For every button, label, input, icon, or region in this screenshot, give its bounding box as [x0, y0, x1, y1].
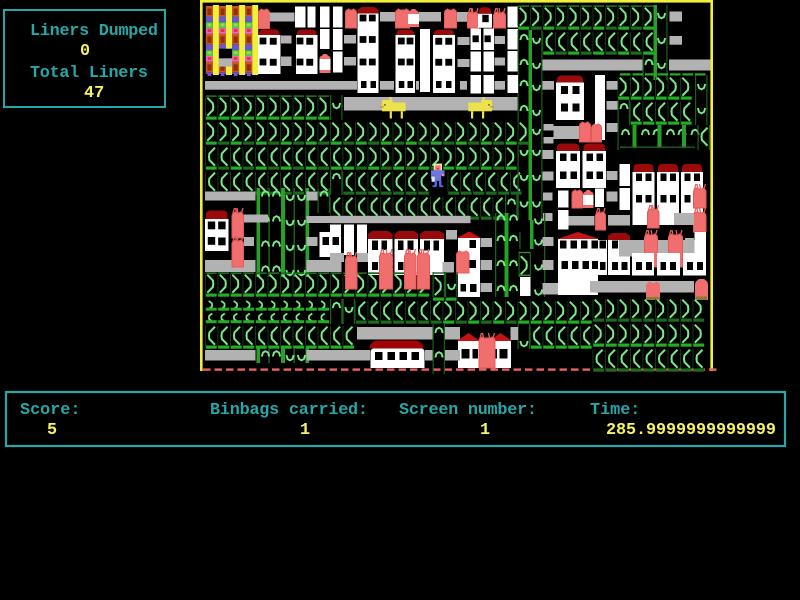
- svg-text:Binbags carried:: Binbags carried:: [210, 401, 368, 420]
- svg-text:1: 1: [300, 421, 310, 440]
- svg-text:285.9999999999999: 285.9999999999999: [606, 421, 776, 440]
- svg-text:1: 1: [480, 421, 490, 440]
- svg-text:Liners Dumped: Liners Dumped: [30, 22, 158, 41]
- svg-text:47: 47: [84, 84, 104, 103]
- svg-text:Total Liners: Total Liners: [30, 64, 148, 83]
- svg-text:0: 0: [80, 42, 90, 61]
- svg-text:5: 5: [47, 421, 57, 440]
- svg-text:Screen number:: Screen number:: [399, 401, 537, 420]
- svg-text:Time:: Time:: [590, 401, 640, 420]
- svg-text:Score:: Score:: [20, 401, 80, 420]
